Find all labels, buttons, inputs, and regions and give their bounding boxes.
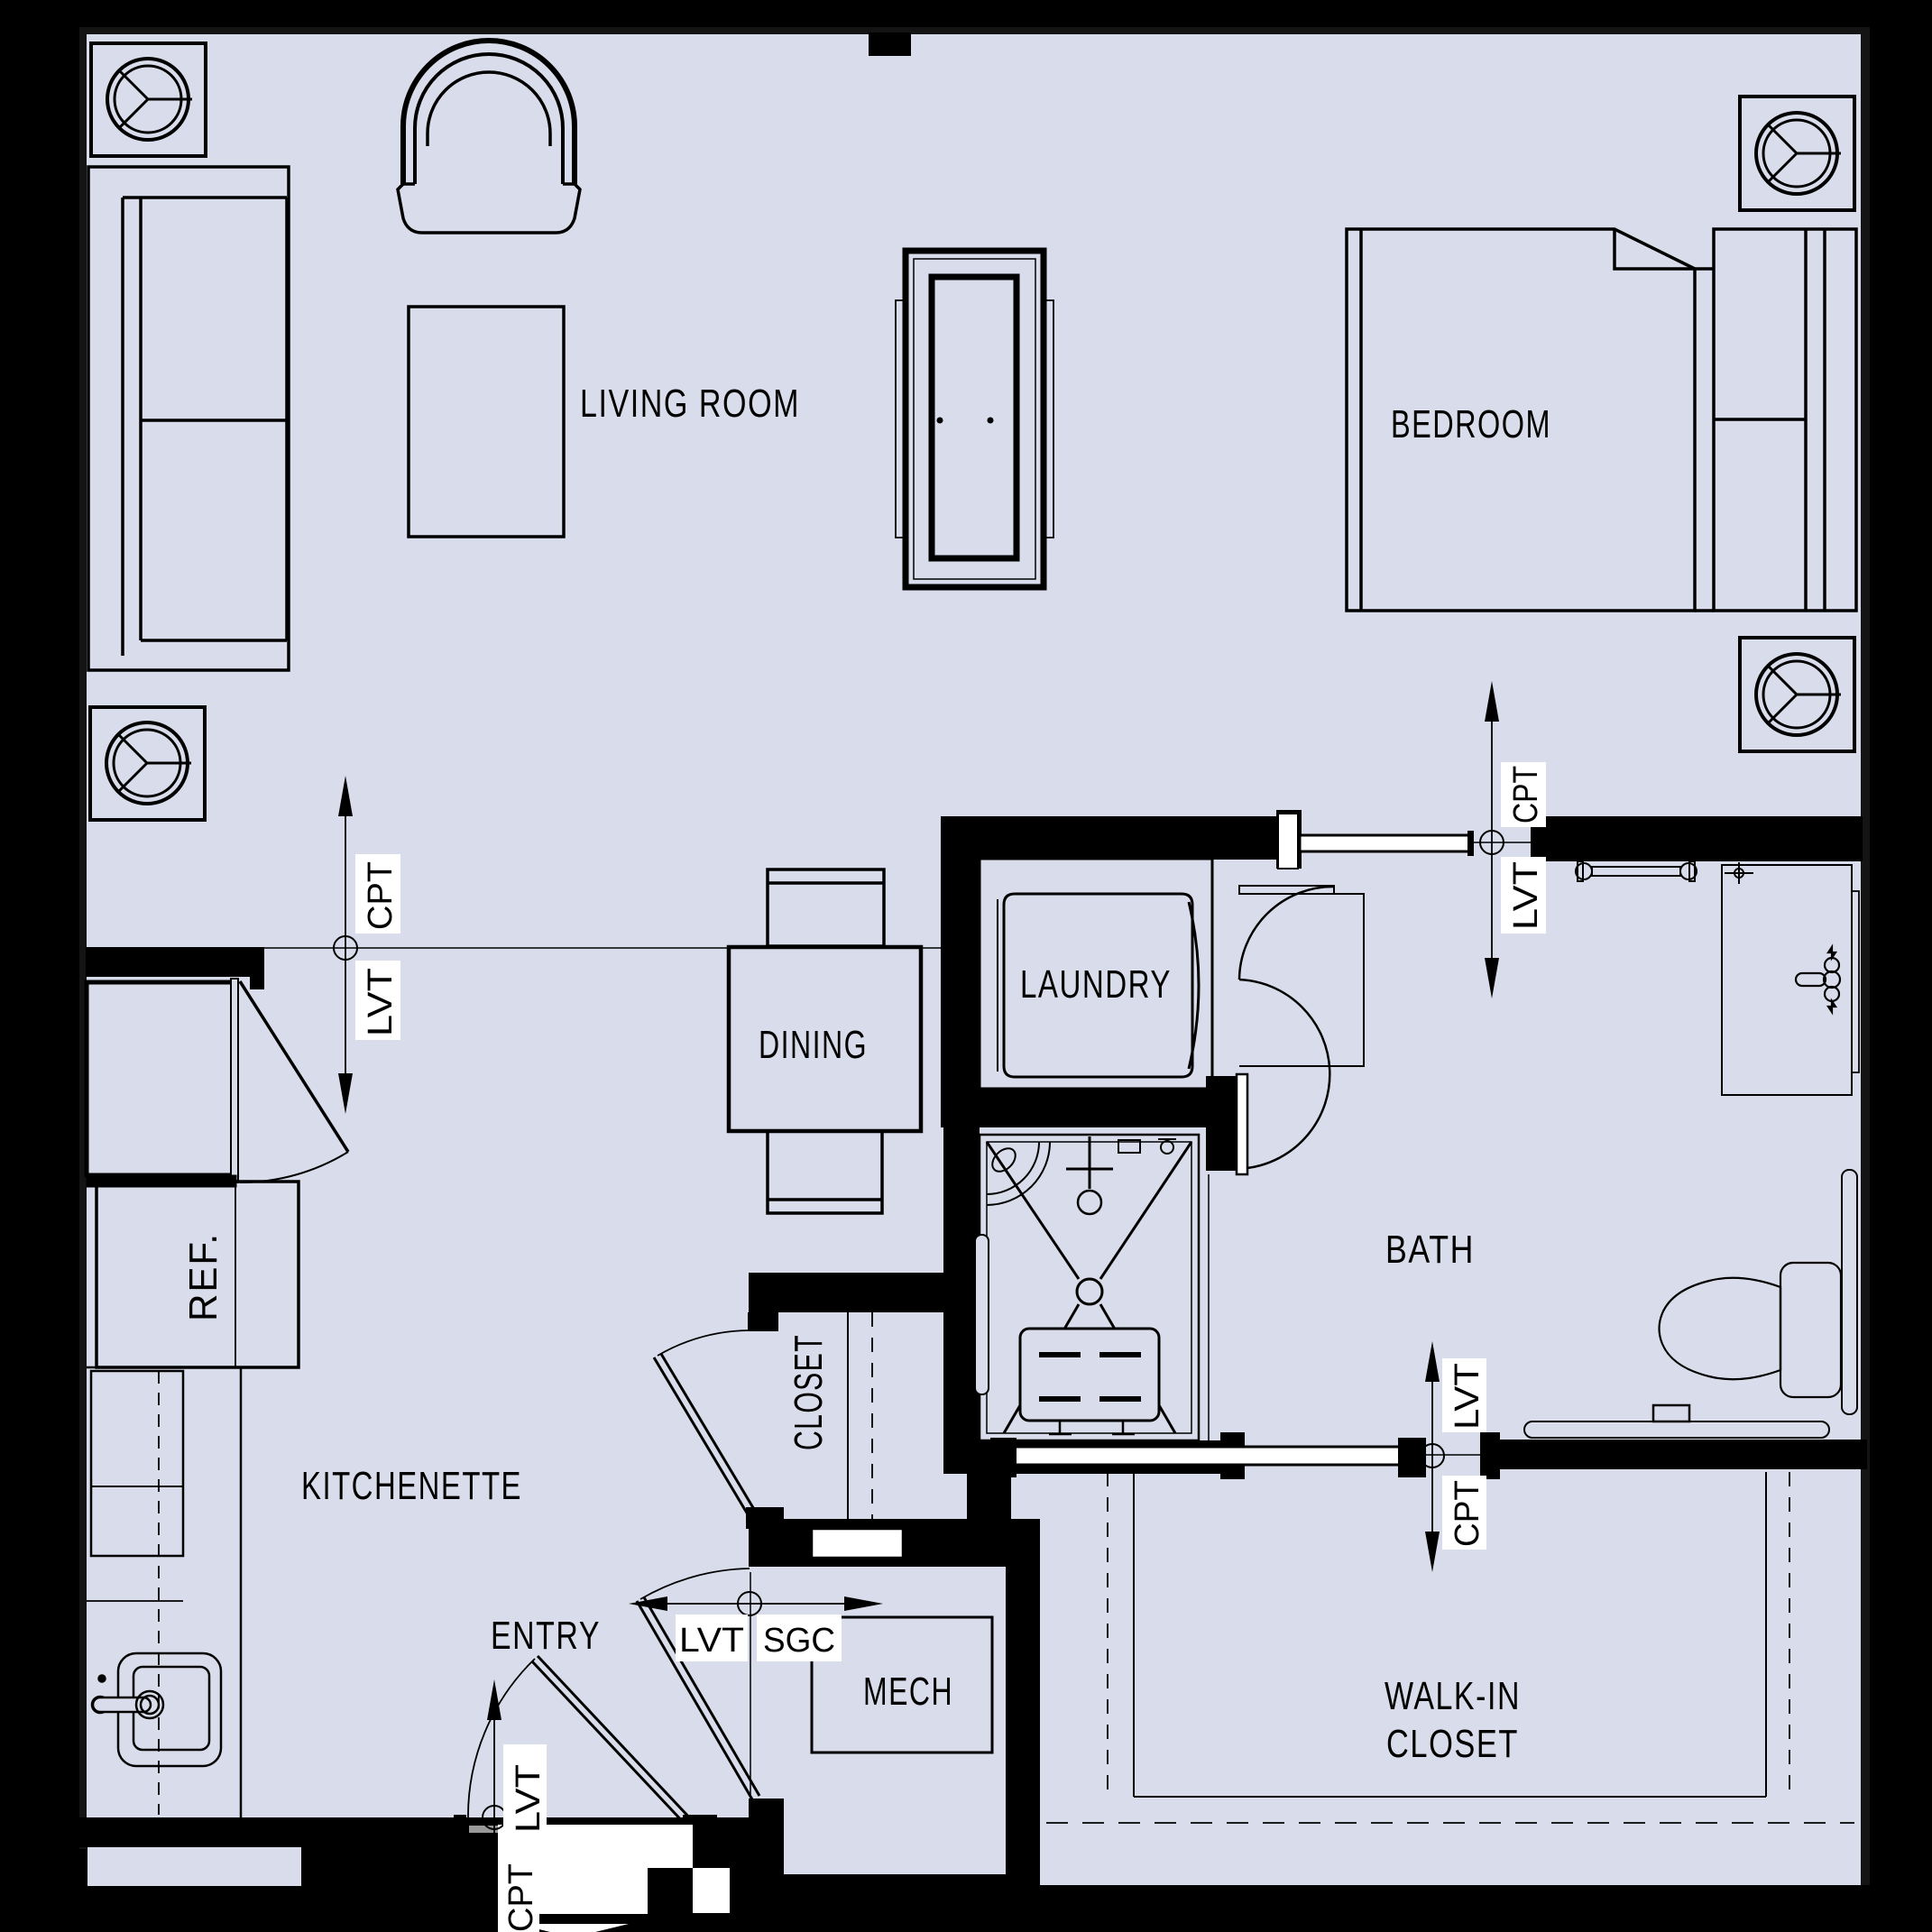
svg-text:CPT: CPT	[1507, 766, 1545, 823]
svg-text:LVT: LVT	[362, 968, 400, 1036]
svg-text:WALK-IN: WALK-IN	[1385, 1674, 1521, 1718]
svg-text:MECH: MECH	[863, 1670, 953, 1714]
svg-text:CLOSET: CLOSET	[1386, 1722, 1519, 1766]
svg-text:CPT: CPT	[502, 1863, 540, 1932]
svg-text:CPT: CPT	[362, 861, 400, 930]
svg-text:KITCHENETTE: KITCHENETTE	[301, 1464, 522, 1508]
svg-text:BEDROOM: BEDROOM	[1391, 402, 1551, 446]
svg-text:LVT: LVT	[1449, 1363, 1486, 1430]
svg-text:LVT: LVT	[510, 1764, 547, 1833]
svg-text:LIVING ROOM: LIVING ROOM	[580, 382, 800, 426]
svg-text:ENTRY: ENTRY	[491, 1614, 601, 1658]
svg-text:LVT: LVT	[679, 1622, 744, 1660]
svg-text:CLOSET: CLOSET	[787, 1334, 831, 1450]
svg-text:LVT: LVT	[1507, 861, 1545, 930]
svg-text:SGC: SGC	[763, 1622, 835, 1660]
svg-text:REF.: REF.	[181, 1232, 225, 1321]
svg-text:LAUNDRY: LAUNDRY	[1020, 962, 1172, 1007]
svg-text:CPT: CPT	[1449, 1480, 1486, 1547]
svg-text:BATH: BATH	[1385, 1228, 1475, 1272]
svg-text:DINING: DINING	[759, 1023, 868, 1067]
